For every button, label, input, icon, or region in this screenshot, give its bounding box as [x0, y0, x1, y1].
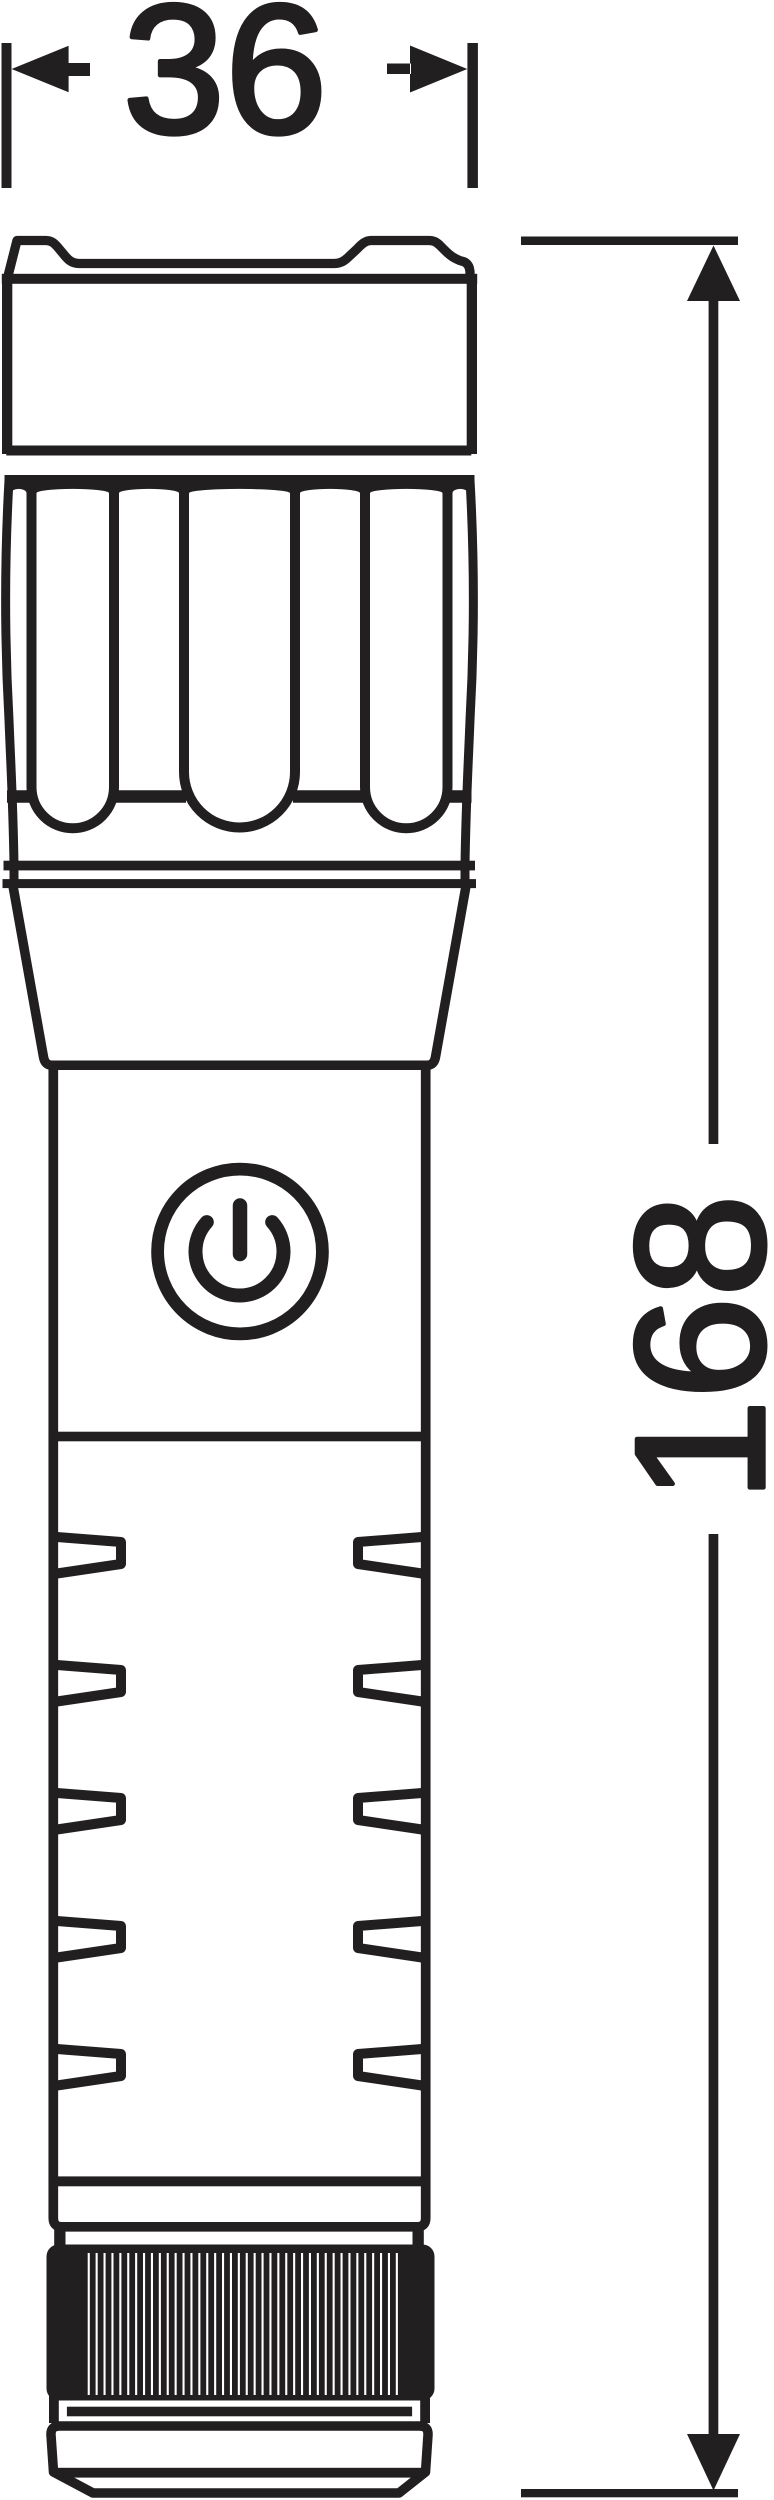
svg-text:168: 168 — [597, 1195, 774, 1502]
svg-text:36: 36 — [123, 0, 328, 172]
